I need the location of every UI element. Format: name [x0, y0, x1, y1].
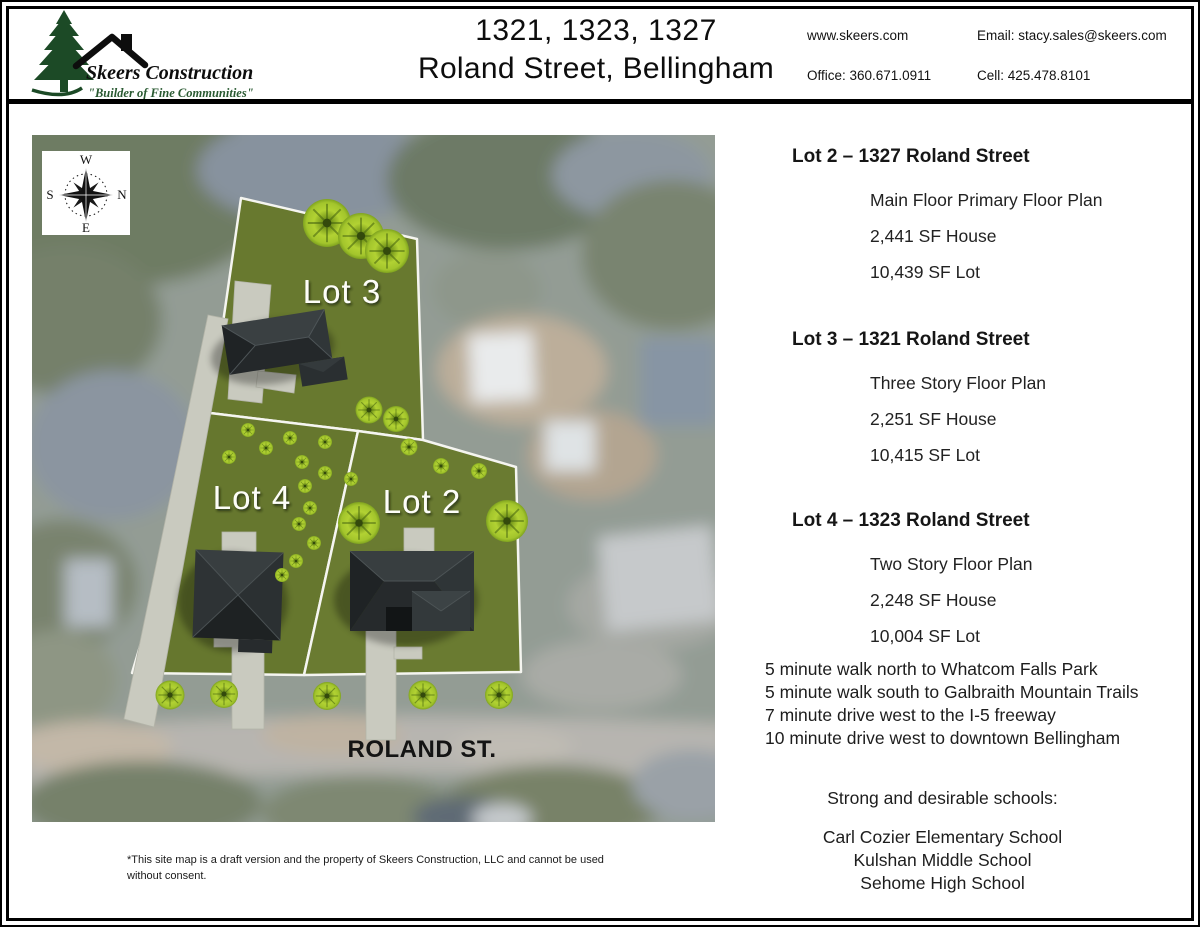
lot4-house-sf: 2,248 SF House	[870, 582, 1195, 618]
lot4-floorplan: Two Story Floor Plan	[870, 546, 1195, 582]
lot4-listing-heading: Lot 4 – 1323 Roland Street	[792, 510, 1195, 532]
logo-company-name: Skeers Construction	[86, 62, 266, 85]
lot2-house-sf: 2,441 SF House	[870, 218, 1195, 254]
compass-south-label: S	[46, 187, 53, 202]
school-middle: Kulshan Middle School	[760, 849, 1125, 872]
lot2-listing-heading: Lot 2 – 1327 Roland Street	[792, 146, 1195, 168]
lot4-label: Lot 4	[213, 479, 291, 516]
lot4-listing: Lot 4 – 1323 Roland Street Two Story Flo…	[765, 510, 1195, 654]
lot3-listing-heading: Lot 3 – 1321 Roland Street	[792, 329, 1195, 351]
note-whatcom-falls: 5 minute walk north to Whatcom Falls Par…	[765, 658, 1195, 681]
lot4-lot-sf: 10,004 SF Lot	[870, 618, 1195, 654]
location-notes: 5 minute walk north to Whatcom Falls Par…	[765, 658, 1195, 750]
compass-north-label: N	[117, 187, 127, 202]
lot2-driveway	[366, 630, 396, 740]
contact-cell-phone: Cell: 425.478.8101	[977, 68, 1090, 83]
site-map: Lot 3 Lot 4 Lot 2 ROLAND ST. W S N E	[32, 135, 715, 822]
lot2-front-pad	[404, 528, 434, 552]
lot2-lot-sf: 10,439 SF Lot	[870, 254, 1195, 290]
lot2-label: Lot 2	[383, 483, 461, 520]
disclaimer-line2: without consent.	[127, 868, 667, 884]
flyer-page: Skeers Construction "Builder of Fine Com…	[0, 0, 1200, 927]
lot3-lot-sf: 10,415 SF Lot	[870, 437, 1195, 473]
school-high: Sehome High School	[760, 872, 1125, 895]
disclaimer: *This site map is a draft version and th…	[127, 852, 667, 884]
lot3-floorplan: Three Story Floor Plan	[870, 365, 1195, 401]
disclaimer-line1: *This site map is a draft version and th…	[127, 852, 667, 868]
compass-west-label: W	[80, 152, 93, 167]
lot2-walk-jog	[394, 647, 422, 659]
note-galbraith: 5 minute walk south to Galbraith Mountai…	[765, 681, 1195, 704]
compass-east-label: E	[82, 220, 90, 235]
lot3-listing: Lot 3 – 1321 Roland Street Three Story F…	[765, 329, 1195, 473]
pine-tree-icon	[32, 10, 94, 95]
header-divider	[9, 99, 1191, 104]
school-elementary: Carl Cozier Elementary School	[760, 826, 1125, 849]
roland-street-label: ROLAND ST.	[348, 736, 497, 763]
page-title: 1321, 1323, 1327 Roland Street, Bellingh…	[400, 13, 792, 89]
schools-heading: Strong and desirable schools:	[760, 787, 1125, 810]
lot3-house-sf: 2,251 SF House	[870, 401, 1195, 437]
lot2-house	[334, 551, 478, 646]
note-i5-freeway: 7 minute drive west to the I-5 freeway	[765, 704, 1195, 727]
title-addresses: 1321, 1323, 1327	[400, 13, 792, 49]
lot3-label: Lot 3	[303, 273, 381, 310]
lot2-floorplan: Main Floor Primary Floor Plan	[870, 182, 1195, 218]
note-downtown: 10 minute drive west to downtown Belling…	[765, 727, 1195, 750]
title-street-city: Roland Street, Bellingham	[400, 49, 792, 89]
contact-email: Email: stacy.sales@skeers.com	[977, 28, 1167, 43]
schools-block: Strong and desirable schools: Carl Cozie…	[760, 787, 1125, 895]
compass-rose-icon: W S N E	[42, 151, 130, 235]
lot2-listing: Lot 2 – 1327 Roland Street Main Floor Pr…	[765, 146, 1195, 290]
contact-website: www.skeers.com	[807, 28, 908, 43]
contact-office-phone: Office: 360.671.0911	[807, 68, 931, 83]
